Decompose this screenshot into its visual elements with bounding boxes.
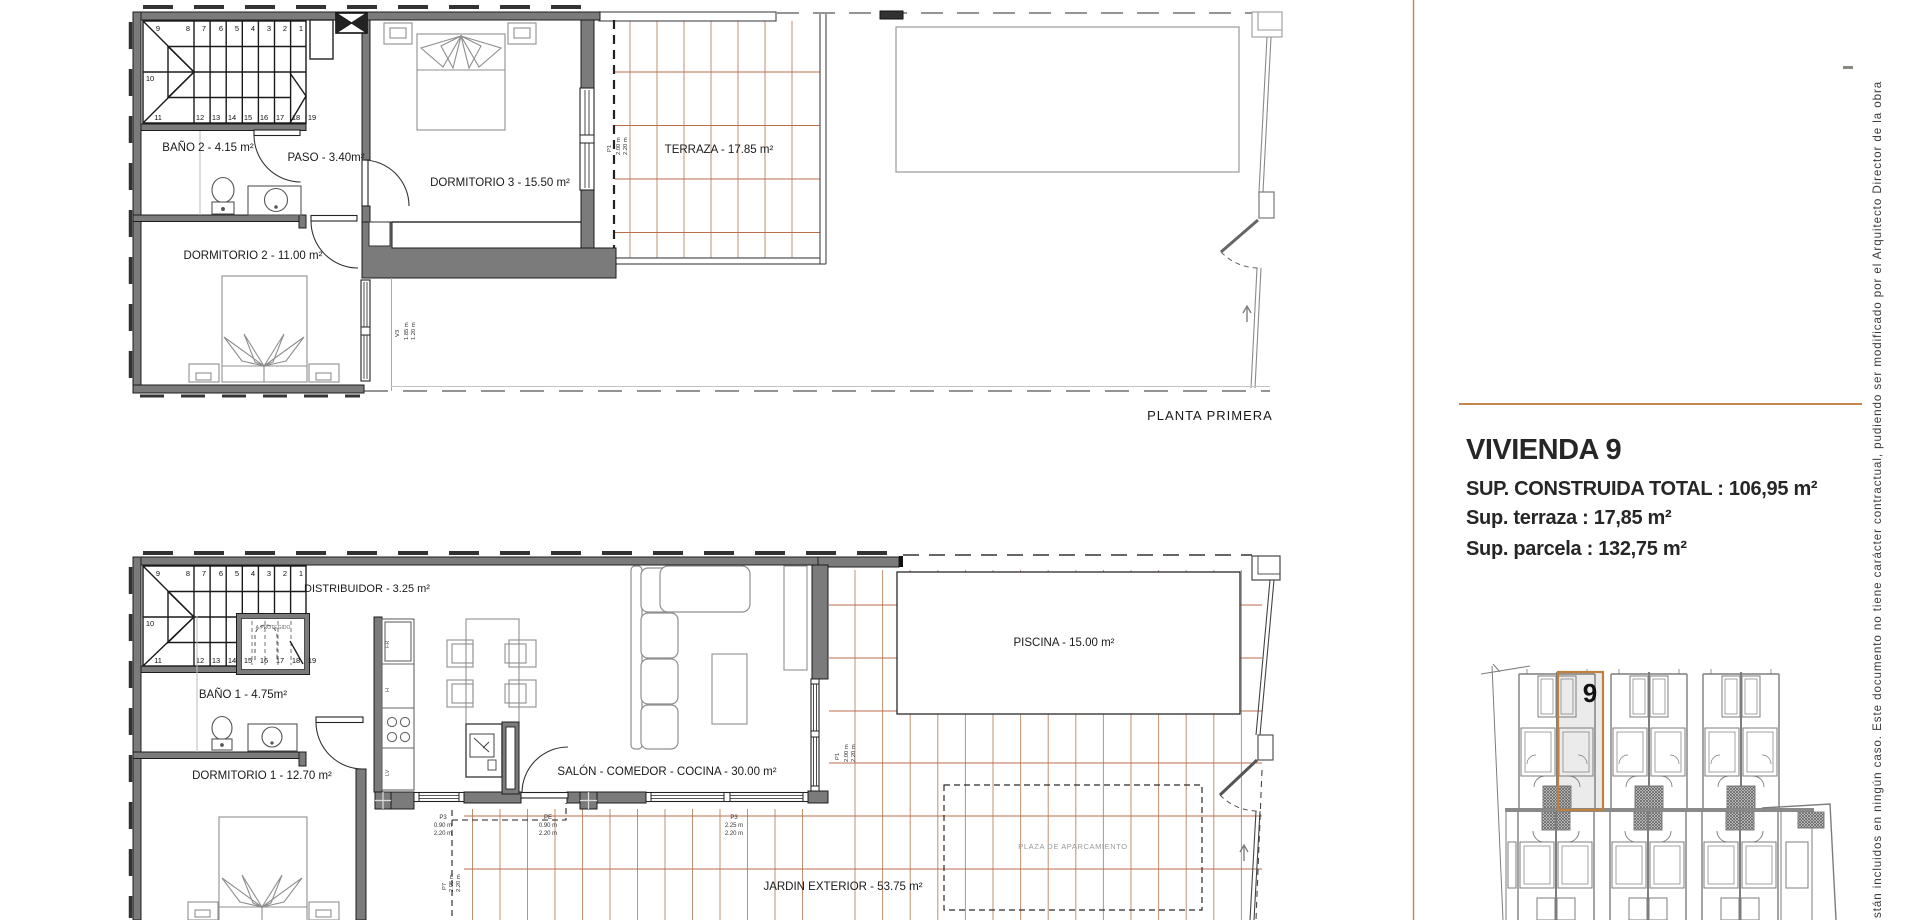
svg-text:DISTRIBUIDOR - 3.25 m²: DISTRIBUIDOR - 3.25 m² (304, 583, 430, 595)
svg-text:9: 9 (156, 569, 160, 578)
svg-text:7: 7 (202, 24, 206, 33)
svg-text:17: 17 (276, 656, 284, 665)
svg-text:6: 6 (219, 24, 223, 33)
svg-text:P1: P1 (835, 753, 841, 760)
svg-text:BAÑO 2 - 4.15 m²: BAÑO 2 - 4.15 m² (162, 141, 254, 154)
svg-text:16: 16 (260, 656, 268, 665)
svg-text:PE: PE (544, 815, 552, 821)
svg-text:16: 16 (260, 113, 268, 122)
svg-text:V3: V3 (395, 330, 401, 337)
svg-text:PLAZA DE APARCAMIENTO: PLAZA DE APARCAMIENTO (1018, 842, 1127, 851)
svg-text:2.20 m: 2.20 m (434, 831, 452, 837)
svg-text:SALÓN - COMEDOR - COCINA - 30.: SALÓN - COMEDOR - COCINA - 30.00 m² (557, 765, 776, 778)
svg-text:11: 11 (154, 656, 162, 665)
svg-text:4: 4 (251, 569, 255, 578)
svg-text:DORMITORIO 2 - 11.00 m²: DORMITORIO 2 - 11.00 m² (184, 250, 323, 262)
svg-text:BAÑO 1 - 4.75m²: BAÑO 1 - 4.75m² (199, 688, 287, 701)
svg-text:TERRAZA - 17.85 m²: TERRAZA - 17.85 m² (665, 144, 774, 156)
svg-text:6: 6 (219, 569, 223, 578)
svg-text:P7: P7 (442, 883, 448, 890)
svg-text:15: 15 (244, 113, 252, 122)
svg-text:P1: P1 (607, 145, 613, 152)
svg-text:13: 13 (212, 656, 220, 665)
svg-text:7: 7 (202, 569, 206, 578)
svg-text:17: 17 (276, 113, 284, 122)
svg-text:LV: LV (385, 769, 391, 776)
svg-text:DORMITORIO 1 - 12.70 m²: DORMITORIO 1 - 12.70 m² (192, 770, 332, 782)
svg-text:JARDIN EXTERIOR - 53.75 m²: JARDIN EXTERIOR - 53.75 m² (763, 881, 922, 893)
svg-text:1: 1 (299, 24, 303, 33)
svg-text:Sup. parcela : 132,75 m²: Sup. parcela : 132,75 m² (1466, 538, 1687, 560)
svg-text:9: 9 (156, 24, 160, 33)
svg-text:2.20 m: 2.20 m (539, 831, 557, 837)
svg-text:18: 18 (292, 113, 300, 122)
svg-text:5: 5 (235, 569, 239, 578)
svg-text:3: 3 (267, 24, 271, 33)
svg-text:PLANTA PRIMERA: PLANTA PRIMERA (1147, 408, 1273, 423)
svg-text:14: 14 (228, 113, 236, 122)
svg-text:3: 3 (267, 569, 271, 578)
svg-text:2.20 m: 2.20 m (456, 874, 462, 892)
svg-text:2: 2 (283, 24, 287, 33)
svg-text:stán incluidos en ningún caso.: stán incluidos en ningún caso. Este docu… (1871, 81, 1884, 918)
svg-text:P3: P3 (730, 815, 738, 821)
svg-text:4: 4 (251, 24, 255, 33)
svg-text:2.20 m: 2.20 m (725, 831, 743, 837)
svg-text:1.20 m: 1.20 m (411, 322, 417, 340)
svg-text:12: 12 (196, 113, 204, 122)
svg-text:PASO - 3.40m²: PASO - 3.40m² (287, 152, 364, 164)
svg-text:1.85 m: 1.85 m (404, 322, 410, 340)
svg-text:2.00 m: 2.00 m (616, 137, 622, 155)
svg-text:SUP. CONSTRUIDA TOTAL : 106,95: SUP. CONSTRUIDA TOTAL : 106,95 m² (1466, 478, 1818, 500)
svg-text:DORMITORIO 3 - 15.50 m²: DORMITORIO 3 - 15.50 m² (430, 177, 570, 189)
svg-text:2.25 m: 2.25 m (725, 823, 743, 829)
svg-text:VIVIENDA 9: VIVIENDA 9 (1466, 434, 1621, 466)
svg-text:FR: FR (385, 641, 391, 648)
svg-text:1: 1 (299, 569, 303, 578)
svg-text:19: 19 (308, 113, 316, 122)
svg-text:Sup. terraza : 17,85 m²: Sup. terraza : 17,85 m² (1466, 507, 1672, 529)
svg-text:5: 5 (235, 24, 239, 33)
svg-text:19: 19 (308, 656, 316, 665)
svg-text:H: H (385, 688, 391, 692)
svg-text:10: 10 (146, 74, 154, 83)
svg-text:14: 14 (228, 656, 236, 665)
svg-text:8: 8 (186, 24, 190, 33)
svg-text:2.20 m: 2.20 m (623, 137, 629, 155)
svg-text:13: 13 (212, 113, 220, 122)
svg-text:2: 2 (283, 569, 287, 578)
svg-text:15: 15 (244, 656, 252, 665)
svg-text:2.05 m: 2.05 m (449, 874, 455, 892)
svg-text:9: 9 (1583, 678, 1597, 708)
svg-text:P3: P3 (439, 815, 447, 821)
svg-text:10: 10 (146, 619, 154, 628)
svg-text:A.PROTEGIDO: A.PROTEGIDO (256, 625, 291, 631)
svg-text:0.90 m: 0.90 m (539, 823, 557, 829)
svg-text:11: 11 (154, 113, 162, 122)
svg-text:2.00 m: 2.00 m (844, 744, 850, 762)
svg-text:0.90 m: 0.90 m (434, 823, 452, 829)
svg-text:PISCINA - 15.00 m²: PISCINA - 15.00 m² (1014, 637, 1115, 649)
svg-text:8: 8 (186, 569, 190, 578)
svg-text:2.20 m: 2.20 m (851, 744, 857, 762)
